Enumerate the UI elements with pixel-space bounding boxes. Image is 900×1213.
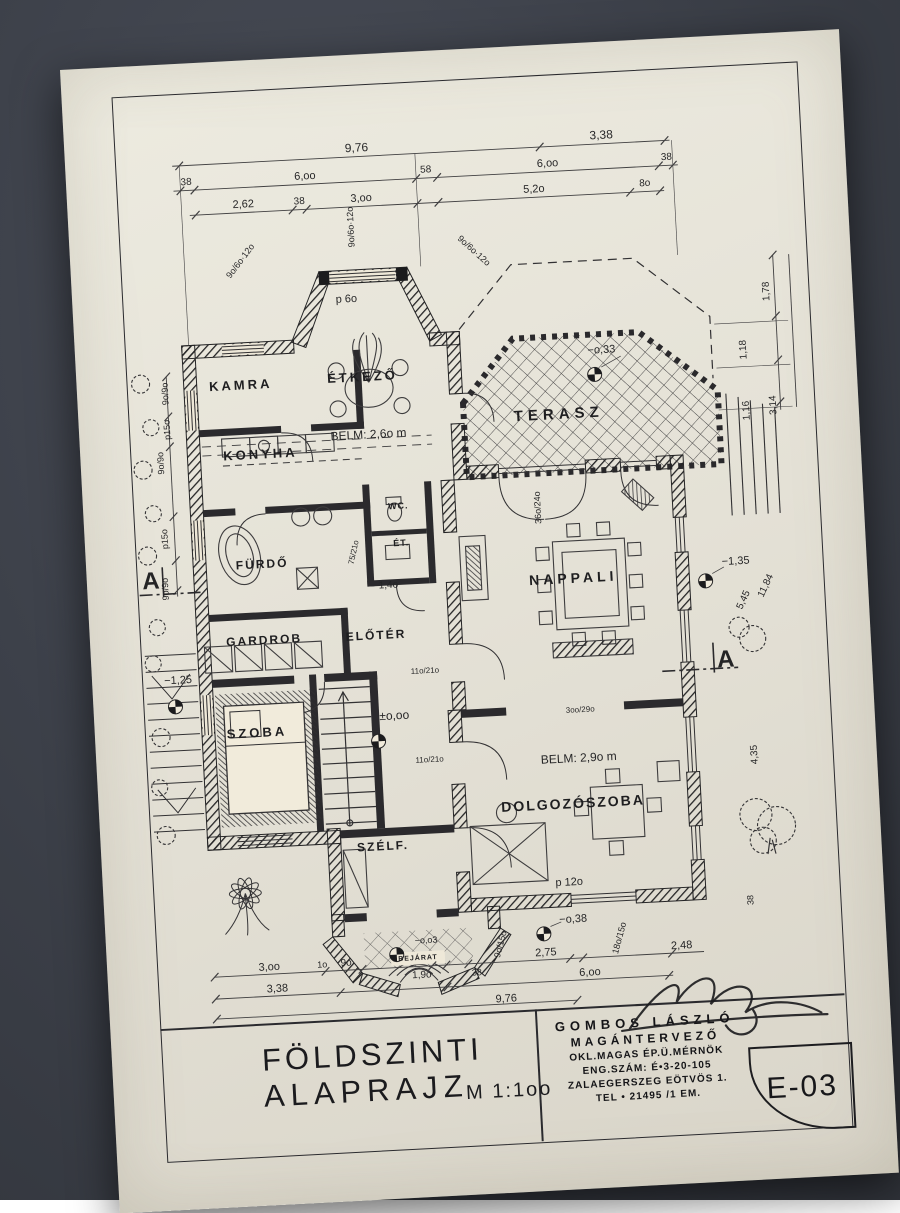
terrace-area bbox=[456, 251, 780, 529]
interior-stairs bbox=[319, 687, 377, 827]
floor-plan: 9,763,38386,oo586,oo382,62383,oo5,2o8o9o… bbox=[114, 64, 842, 1038]
dimension-lines bbox=[151, 130, 827, 1024]
photo-background: 9,763,38386,oo586,oo382,62383,oo5,2o8o9o… bbox=[0, 0, 900, 1200]
bay-corner-pier bbox=[396, 267, 408, 281]
drawing-paper: 9,763,38386,oo586,oo382,62383,oo5,2o8o9o… bbox=[60, 29, 899, 1213]
bay-corner-pier bbox=[319, 271, 331, 285]
sheet-number: E-03 bbox=[766, 1069, 839, 1107]
signature bbox=[613, 955, 852, 1047]
bedroom-bed bbox=[215, 690, 322, 828]
drawing-scale: M 1:1oo bbox=[466, 1078, 553, 1105]
floor-plan-drawing bbox=[114, 64, 842, 1038]
